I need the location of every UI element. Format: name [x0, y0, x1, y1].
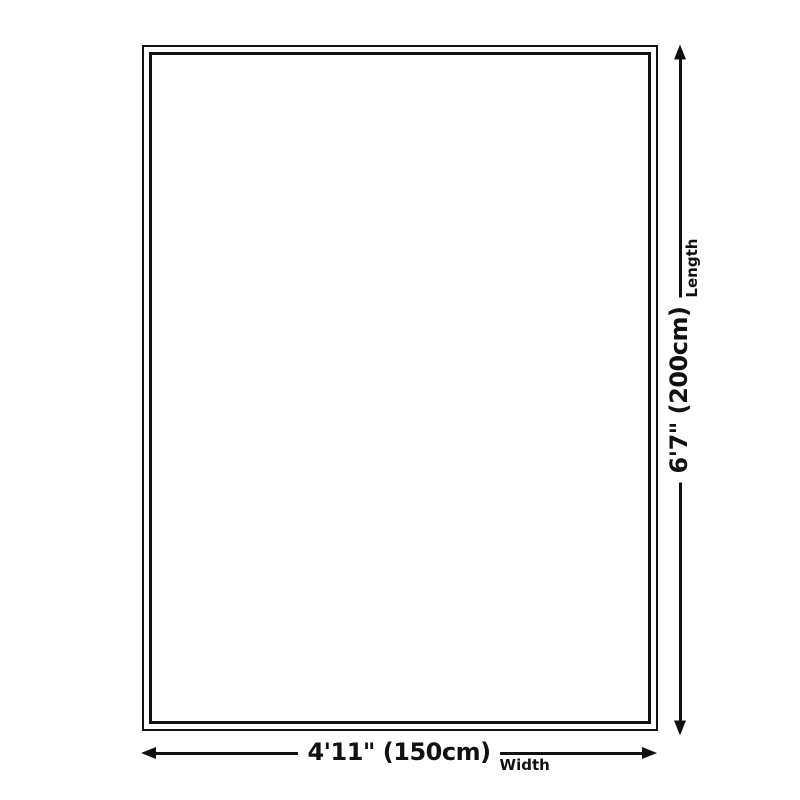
- length-text: 6'7" (200cm) Length: [666, 298, 694, 483]
- length-line-bottom-segment: [679, 482, 682, 720]
- size-diagram: 6'7" (200cm) Length 4'11" (150cm) Width: [0, 0, 800, 800]
- rug-outline: [142, 45, 658, 731]
- width-line-left-segment: [156, 752, 298, 755]
- width-text: 4'11" (150cm) Width: [298, 739, 499, 767]
- length-dimension: 6'7" (200cm) Length: [664, 45, 696, 736]
- width-line-right-segment: [500, 752, 642, 755]
- width-dimension: 4'11" (150cm) Width: [141, 737, 657, 769]
- width-value: 4'11" (150cm): [307, 739, 490, 767]
- length-label: Length: [684, 239, 701, 298]
- arrow-left-icon: [141, 747, 156, 759]
- arrow-up-icon: [674, 45, 686, 60]
- arrow-right-icon: [642, 747, 657, 759]
- arrow-down-icon: [674, 721, 686, 736]
- length-line-top-segment: [679, 60, 682, 298]
- width-label: Width: [500, 757, 550, 774]
- rug-inner-outline: [149, 52, 651, 724]
- length-value: 6'7" (200cm): [666, 307, 694, 474]
